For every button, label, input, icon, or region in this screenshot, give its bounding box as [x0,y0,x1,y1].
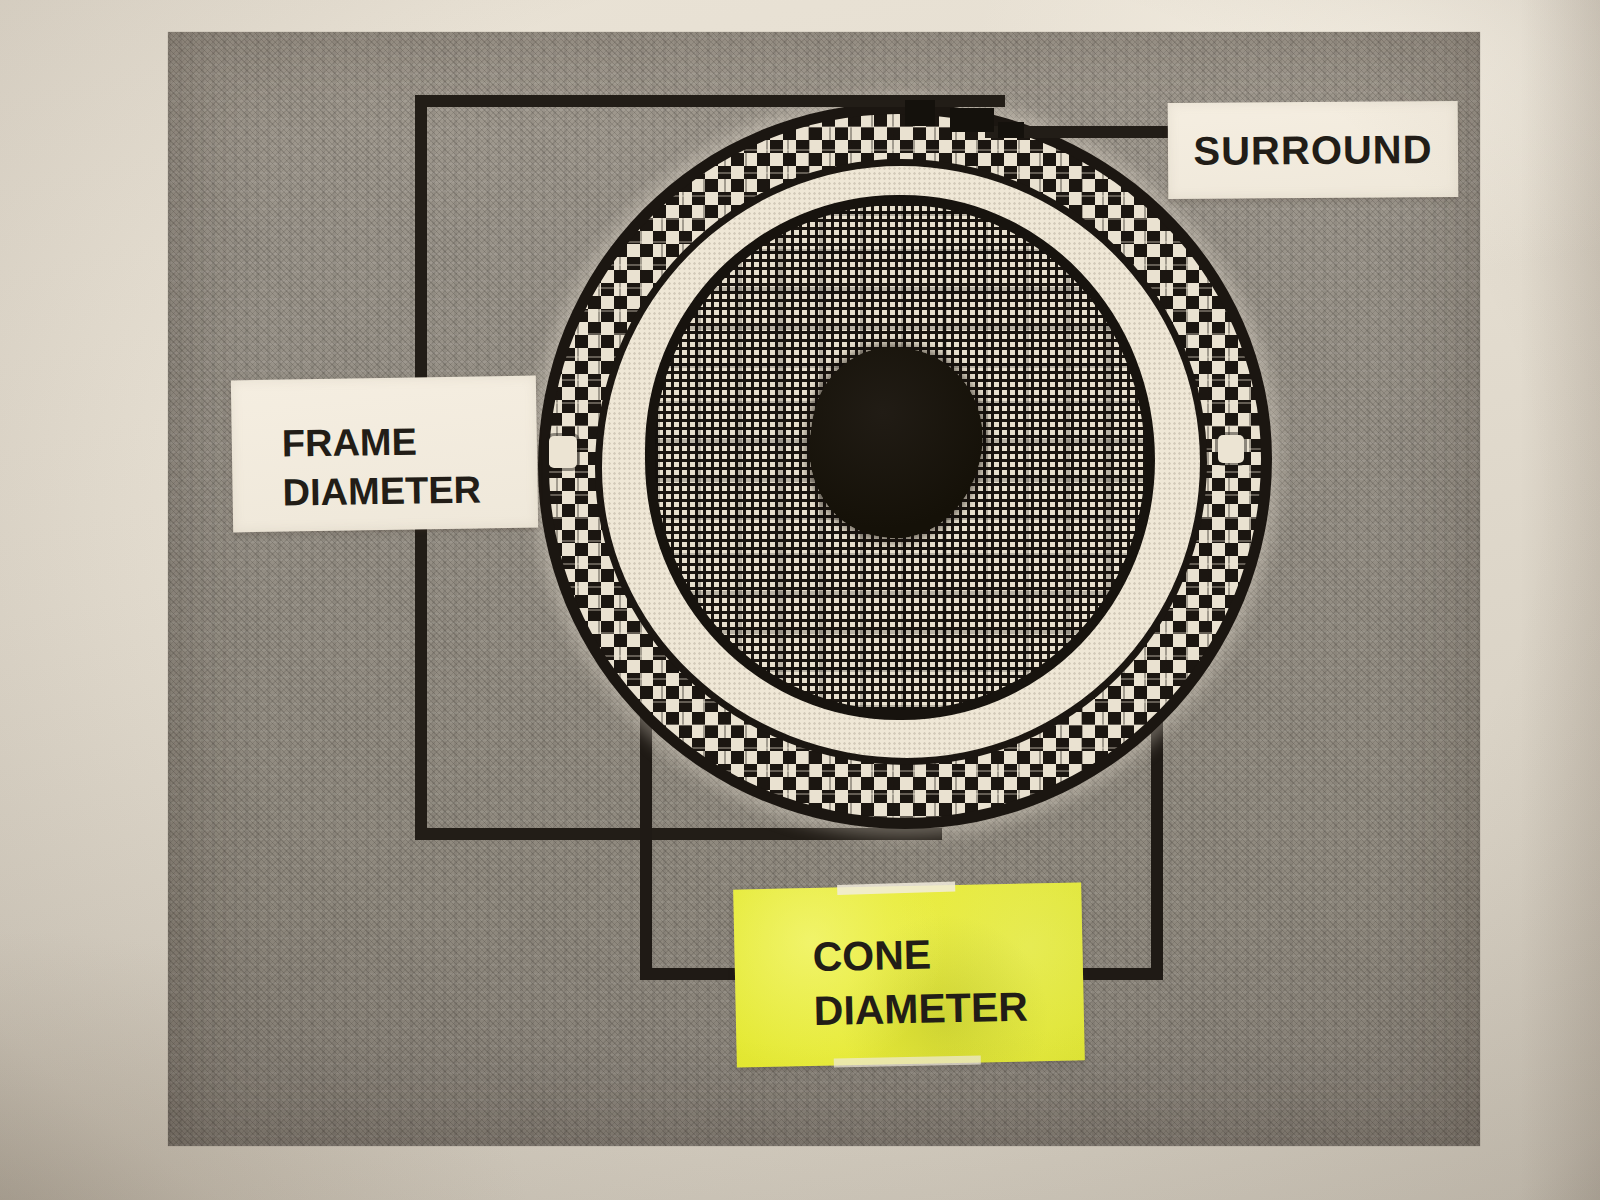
surround-label-text: SURROUND [1193,127,1432,174]
mounting-tab-left [549,436,577,468]
frame-diameter-label: FRAME DIAMETER [231,376,538,533]
speaker-drawing [538,103,1250,807]
print-artifact [905,100,935,126]
cone-diameter-label-line2: DIAMETER [813,978,1084,1038]
print-artifact [998,122,1024,138]
print-artifact [950,108,994,132]
frame-diameter-label-line2: DIAMETER [282,465,538,518]
frame-diameter-label-line1: FRAME [281,416,537,469]
surround-label: SURROUND [1168,101,1459,199]
cone-diameter-label-line1: CONE [812,924,1083,984]
cone-diameter-label: CONE DIAMETER [733,882,1085,1067]
mounting-tab-right [1218,435,1244,463]
speaker-diagram-photo: SURROUND FRAME DIAMETER CONE DIAMETER [0,0,1600,1200]
